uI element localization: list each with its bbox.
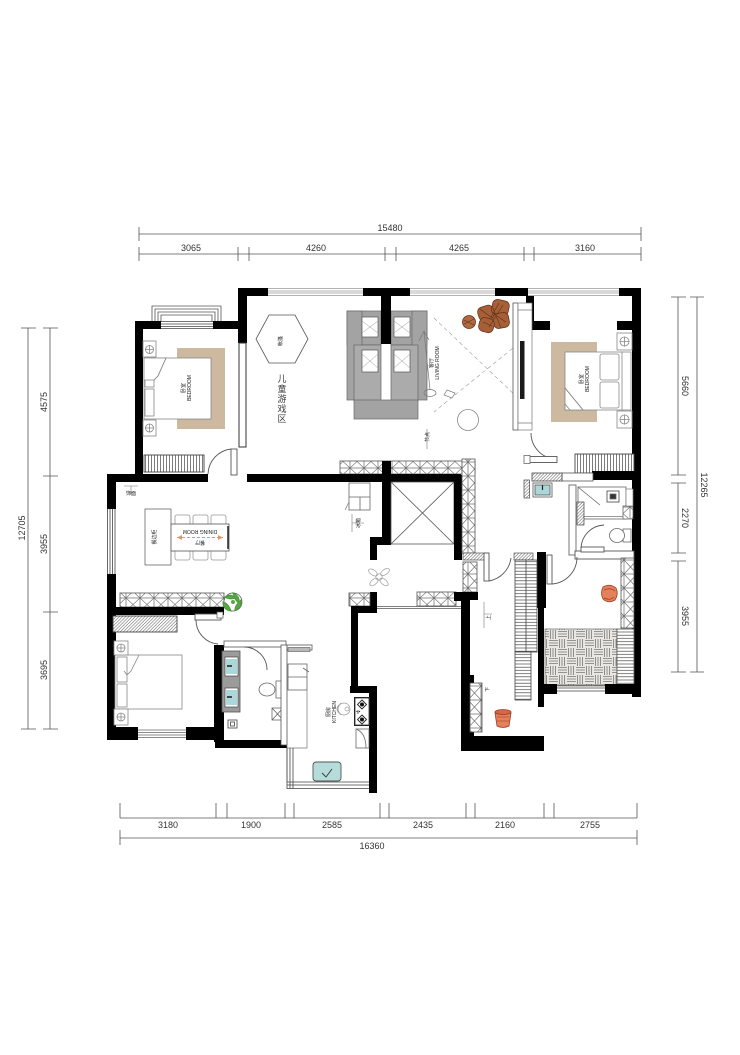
svg-text:5660: 5660 [680,376,690,396]
svg-text:KITCHEN: KITCHEN [332,701,338,723]
svg-text:餐厅: 餐厅 [195,539,205,546]
svg-text:下: 下 [485,687,491,692]
svg-text:LIVING ROOM: LIVING ROOM [435,346,441,379]
svg-text:童: 童 [277,383,286,394]
svg-text:4265: 4265 [449,243,469,253]
svg-text:厨房: 厨房 [325,707,332,717]
svg-text:3180: 3180 [158,820,178,830]
svg-text:3160: 3160 [575,243,595,253]
svg-text:2755: 2755 [580,820,600,830]
svg-text:1900: 1900 [241,820,261,830]
svg-text:卧室: 卧室 [578,374,585,384]
svg-text:餐边柜: 餐边柜 [151,529,158,544]
svg-text:15480: 15480 [377,223,402,233]
svg-text:2435: 2435 [413,820,433,830]
svg-text:客厅: 客厅 [428,358,435,368]
svg-text:戏: 戏 [277,403,286,414]
svg-text:2160: 2160 [495,820,515,830]
svg-text:12265: 12265 [699,472,709,497]
svg-text:4260: 4260 [306,243,326,253]
svg-text:饰面: 饰面 [126,490,136,497]
svg-text:卧室: 卧室 [180,383,187,393]
svg-text:BEDROOM: BEDROOM [585,366,591,392]
svg-text:3695: 3695 [39,660,49,680]
svg-text:冰箱: 冰箱 [355,518,362,528]
svg-text:节点: 节点 [425,432,431,442]
svg-text:区: 区 [277,414,286,424]
svg-text:2585: 2585 [322,820,342,830]
svg-text:帐篷: 帐篷 [277,336,284,346]
svg-text:BEDROOM: BEDROOM [187,375,193,401]
svg-text:3065: 3065 [181,243,201,253]
svg-text:儿: 儿 [277,374,286,384]
svg-text:上: 上 [485,615,492,620]
svg-text:2270: 2270 [680,508,690,528]
svg-text:16360: 16360 [359,841,384,851]
svg-text:3955: 3955 [680,606,690,626]
svg-text:4575: 4575 [39,392,49,412]
svg-text:游: 游 [277,393,286,404]
svg-text:3955: 3955 [39,534,49,554]
svg-text:DINING ROOM: DINING ROOM [183,528,217,534]
svg-text:12705: 12705 [17,515,27,540]
